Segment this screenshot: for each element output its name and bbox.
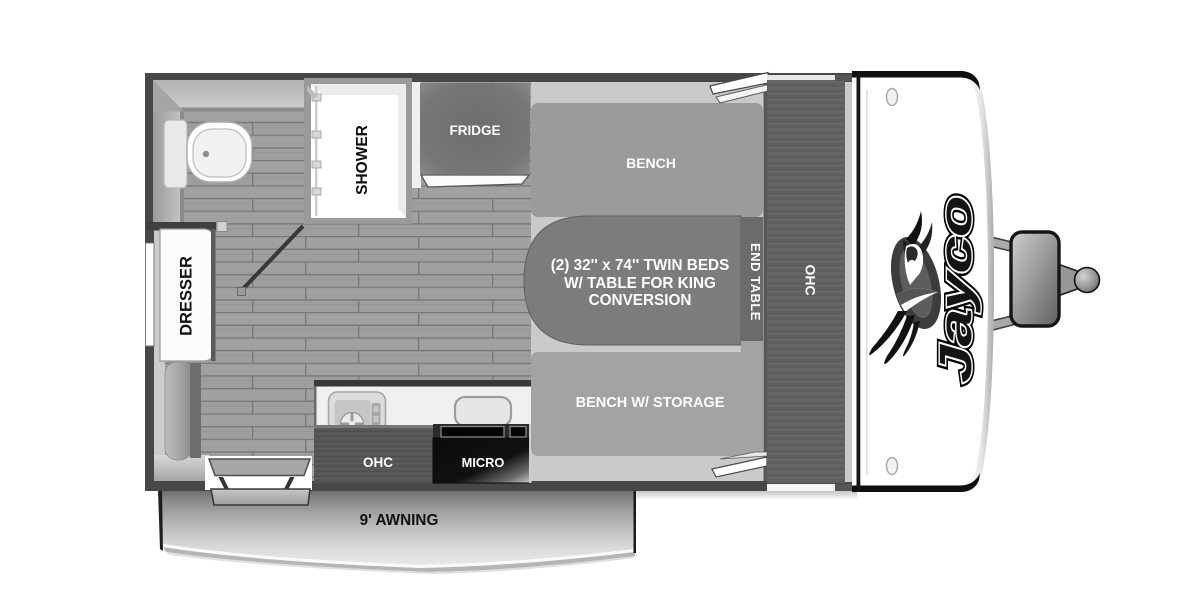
svg-text:SHOWER: SHOWER: [354, 125, 371, 195]
svg-text:BENCH: BENCH: [626, 155, 676, 171]
svg-text:OHC: OHC: [803, 264, 819, 295]
svg-text:BENCH W/ STORAGE: BENCH W/ STORAGE: [576, 395, 725, 411]
svg-text:DRESSER: DRESSER: [178, 256, 196, 336]
svg-text:MICRO: MICRO: [462, 455, 505, 470]
svg-text:9' AWNING: 9' AWNING: [360, 512, 439, 529]
svg-text:OHC: OHC: [363, 455, 393, 470]
svg-text:W/ TABLE FOR KING: W/ TABLE FOR KING: [564, 275, 716, 292]
svg-text:FRIDGE: FRIDGE: [449, 123, 500, 138]
svg-text:(2) 32'' x 74'' TWIN BEDS: (2) 32'' x 74'' TWIN BEDS: [551, 257, 730, 274]
svg-text:CONVERSION: CONVERSION: [589, 292, 692, 309]
svg-text:Jayco: Jayco: [930, 196, 981, 383]
svg-text:END TABLE: END TABLE: [748, 243, 763, 321]
